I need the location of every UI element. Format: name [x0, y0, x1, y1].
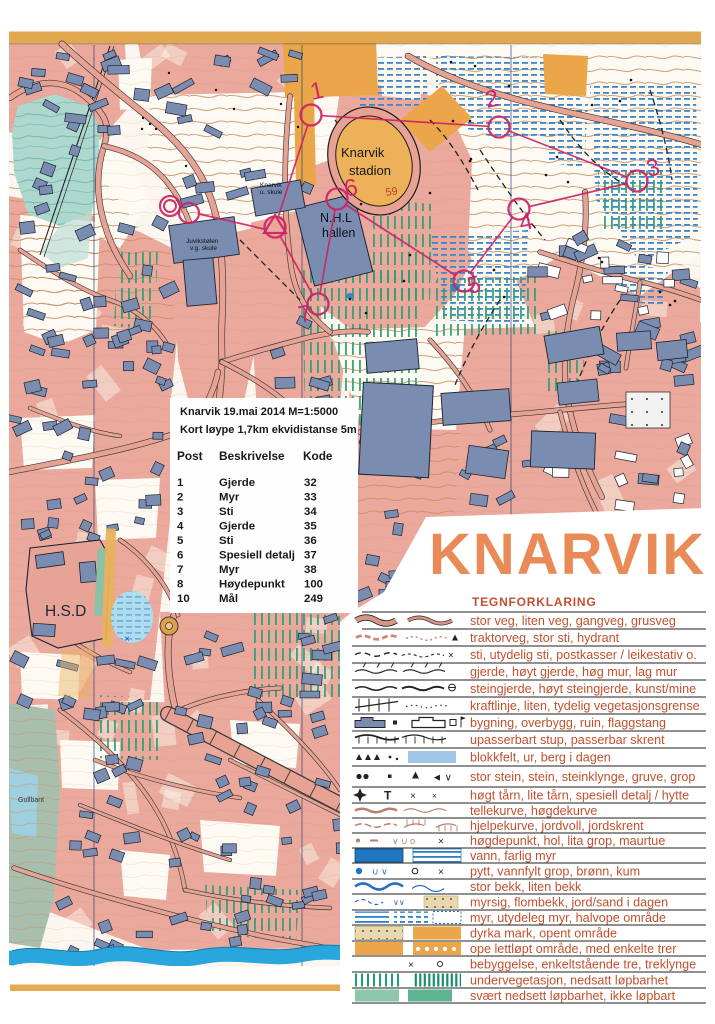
svg-text:1: 1 [177, 477, 184, 489]
svg-text:Myr: Myr [219, 564, 240, 576]
svg-text:u. skule: u. skule [260, 189, 283, 196]
svg-text:×: × [432, 792, 437, 801]
svg-text:myrsig, flombekk, jord/sand i: myrsig, flombekk, jord/sand i dagen [470, 896, 668, 910]
svg-text:TEGNFORKLARING: TEGNFORKLARING [472, 595, 597, 609]
svg-text:×: × [124, 634, 130, 645]
svg-text:Sti: Sti [219, 506, 234, 518]
svg-text:Myr: Myr [219, 492, 240, 504]
svg-text:3: 3 [177, 506, 183, 518]
svg-text:2: 2 [177, 492, 183, 504]
svg-text:34: 34 [304, 506, 317, 518]
svg-text:6: 6 [177, 550, 183, 562]
svg-text:traktorveg, stor sti, hydrant: traktorveg, stor sti, hydrant [470, 631, 620, 645]
svg-text:5: 5 [177, 535, 184, 547]
svg-text:∨∨: ∨∨ [393, 898, 405, 907]
svg-text:249: 249 [304, 593, 323, 605]
svg-text:Gjerde: Gjerde [219, 521, 255, 533]
svg-text:Mål: Mål [219, 593, 238, 605]
svg-text:×: × [438, 867, 444, 878]
svg-text:dyrka mark, opent område: dyrka mark, opent område [470, 927, 617, 941]
svg-text:×: × [438, 837, 444, 848]
svg-text:38: 38 [304, 564, 317, 576]
svg-text:Knarvik 19.mai 2014 M=1:5000: Knarvik 19.mai 2014 M=1:5000 [180, 406, 338, 418]
svg-text:kraftlinje, liten, tydelig veg: kraftlinje, liten, tydelig vegetasjonsgr… [470, 699, 700, 713]
svg-text:◄ ∨: ◄ ∨ [432, 773, 452, 784]
svg-text:stor veg, liten veg, gangveg,: stor veg, liten veg, gangveg, grusveg [470, 614, 676, 628]
svg-text:undervegetasjon, nedsatt løpba: undervegetasjon, nedsatt løpbarhet [470, 974, 669, 988]
svg-text:∪ ∨: ∪ ∨ [372, 867, 388, 877]
svg-text:ope lettløpt område, med enkel: ope lettløpt område, med enkelte trer [470, 942, 677, 956]
svg-text:36: 36 [304, 535, 317, 547]
svg-text:Post: Post [177, 449, 203, 463]
svg-text:×: × [410, 791, 416, 802]
svg-text:hallen: hallen [322, 226, 355, 240]
svg-text:Sti: Sti [219, 535, 234, 547]
svg-text:Spesiell detalj: Spesiell detalj [219, 550, 295, 562]
svg-text:32: 32 [304, 477, 317, 489]
svg-text:hjelpekurve, jordvoll, jordskr: hjelpekurve, jordvoll, jordskrent [470, 819, 644, 833]
svg-text:stor stein, stein, steinklynge: stor stein, stein, steinklynge, gruve, g… [470, 770, 695, 784]
svg-text:Knarvik: Knarvik [260, 182, 282, 189]
svg-text:T: T [384, 789, 392, 803]
svg-text:sti, utydelig sti, postkasser: sti, utydelig sti, postkasser / leikesta… [470, 648, 697, 662]
svg-text:v.g. skule: v.g. skule [190, 245, 217, 252]
svg-text:H.S.D: H.S.D [45, 603, 86, 620]
svg-text:upasserbart stup, passerbar sk: upasserbart stup, passerbar skrent [470, 733, 665, 747]
svg-text:N.H.L: N.H.L [320, 211, 352, 225]
svg-text:100: 100 [304, 579, 323, 591]
svg-text:×: × [448, 651, 454, 662]
svg-text:4: 4 [177, 521, 184, 533]
svg-text:stor bekk, liten bekk: stor bekk, liten bekk [470, 880, 582, 894]
svg-text:10: 10 [177, 593, 190, 605]
svg-text:pytt, vannfylt grop, brønn, ku: pytt, vannfylt grop, brønn, kum [470, 865, 640, 879]
svg-text:37: 37 [304, 550, 317, 562]
svg-text:33: 33 [304, 492, 317, 504]
svg-text:bygning, overbygg, ruin, flagg: bygning, overbygg, ruin, flaggstang [470, 716, 666, 730]
svg-text:Gullbant: Gullbant [18, 797, 44, 804]
svg-text:svært nedsett løpbarhet, ikke: svært nedsett løpbarhet, ikke løpbart [470, 989, 676, 1003]
svg-text:høgdepunkt, hol, lita grop, ma: høgdepunkt, hol, lita grop, maurtue [470, 834, 665, 848]
svg-text:Knarvik: Knarvik [341, 145, 385, 160]
svg-text:gjerde, høyt gjerde, høg mur,: gjerde, høyt gjerde, høg mur, lag mur [470, 665, 677, 679]
svg-text:steingjerde, høyt steingjerde,: steingjerde, høyt steingjerde, kunst/min… [470, 682, 696, 696]
svg-text:59: 59 [385, 185, 399, 199]
svg-text:Gjerde: Gjerde [219, 477, 255, 489]
svg-text:vann, farlig myr: vann, farlig myr [470, 849, 556, 863]
svg-text:35: 35 [304, 521, 317, 533]
svg-text:Juvikstølen: Juvikstølen [186, 238, 219, 245]
svg-text:×: × [408, 960, 414, 971]
svg-text:Kort løype 1,7km ekvidistanse: Kort løype 1,7km ekvidistanse 5m [180, 424, 357, 436]
svg-text:tellekurve, høgdekurve: tellekurve, høgdekurve [470, 804, 597, 818]
svg-text:∨ ∪ o: ∨ ∪ o [392, 836, 415, 846]
svg-text:blokkfelt, ur, berg i dagen: blokkfelt, ur, berg i dagen [470, 751, 611, 765]
svg-text:Beskrivelse: Beskrivelse [219, 449, 285, 463]
svg-text:myr, utydeleg myr, halvope omr: myr, utydeleg myr, halvope område [470, 911, 666, 925]
svg-text:Høydepunkt: Høydepunkt [219, 579, 285, 591]
svg-text:8: 8 [177, 579, 183, 591]
svg-text:høgt tårn, lite tårn, spesiell: høgt tårn, lite tårn, spesiell detalj / … [470, 789, 689, 803]
svg-text:KNARVIK: KNARVIK [429, 522, 706, 587]
svg-text:7: 7 [177, 564, 183, 576]
svg-text:stadion: stadion [349, 163, 391, 178]
svg-text:Kode: Kode [303, 449, 333, 463]
svg-text:bebyggelse, enkeltstående tre,: bebyggelse, enkeltstående tre, treklynge [470, 958, 696, 972]
